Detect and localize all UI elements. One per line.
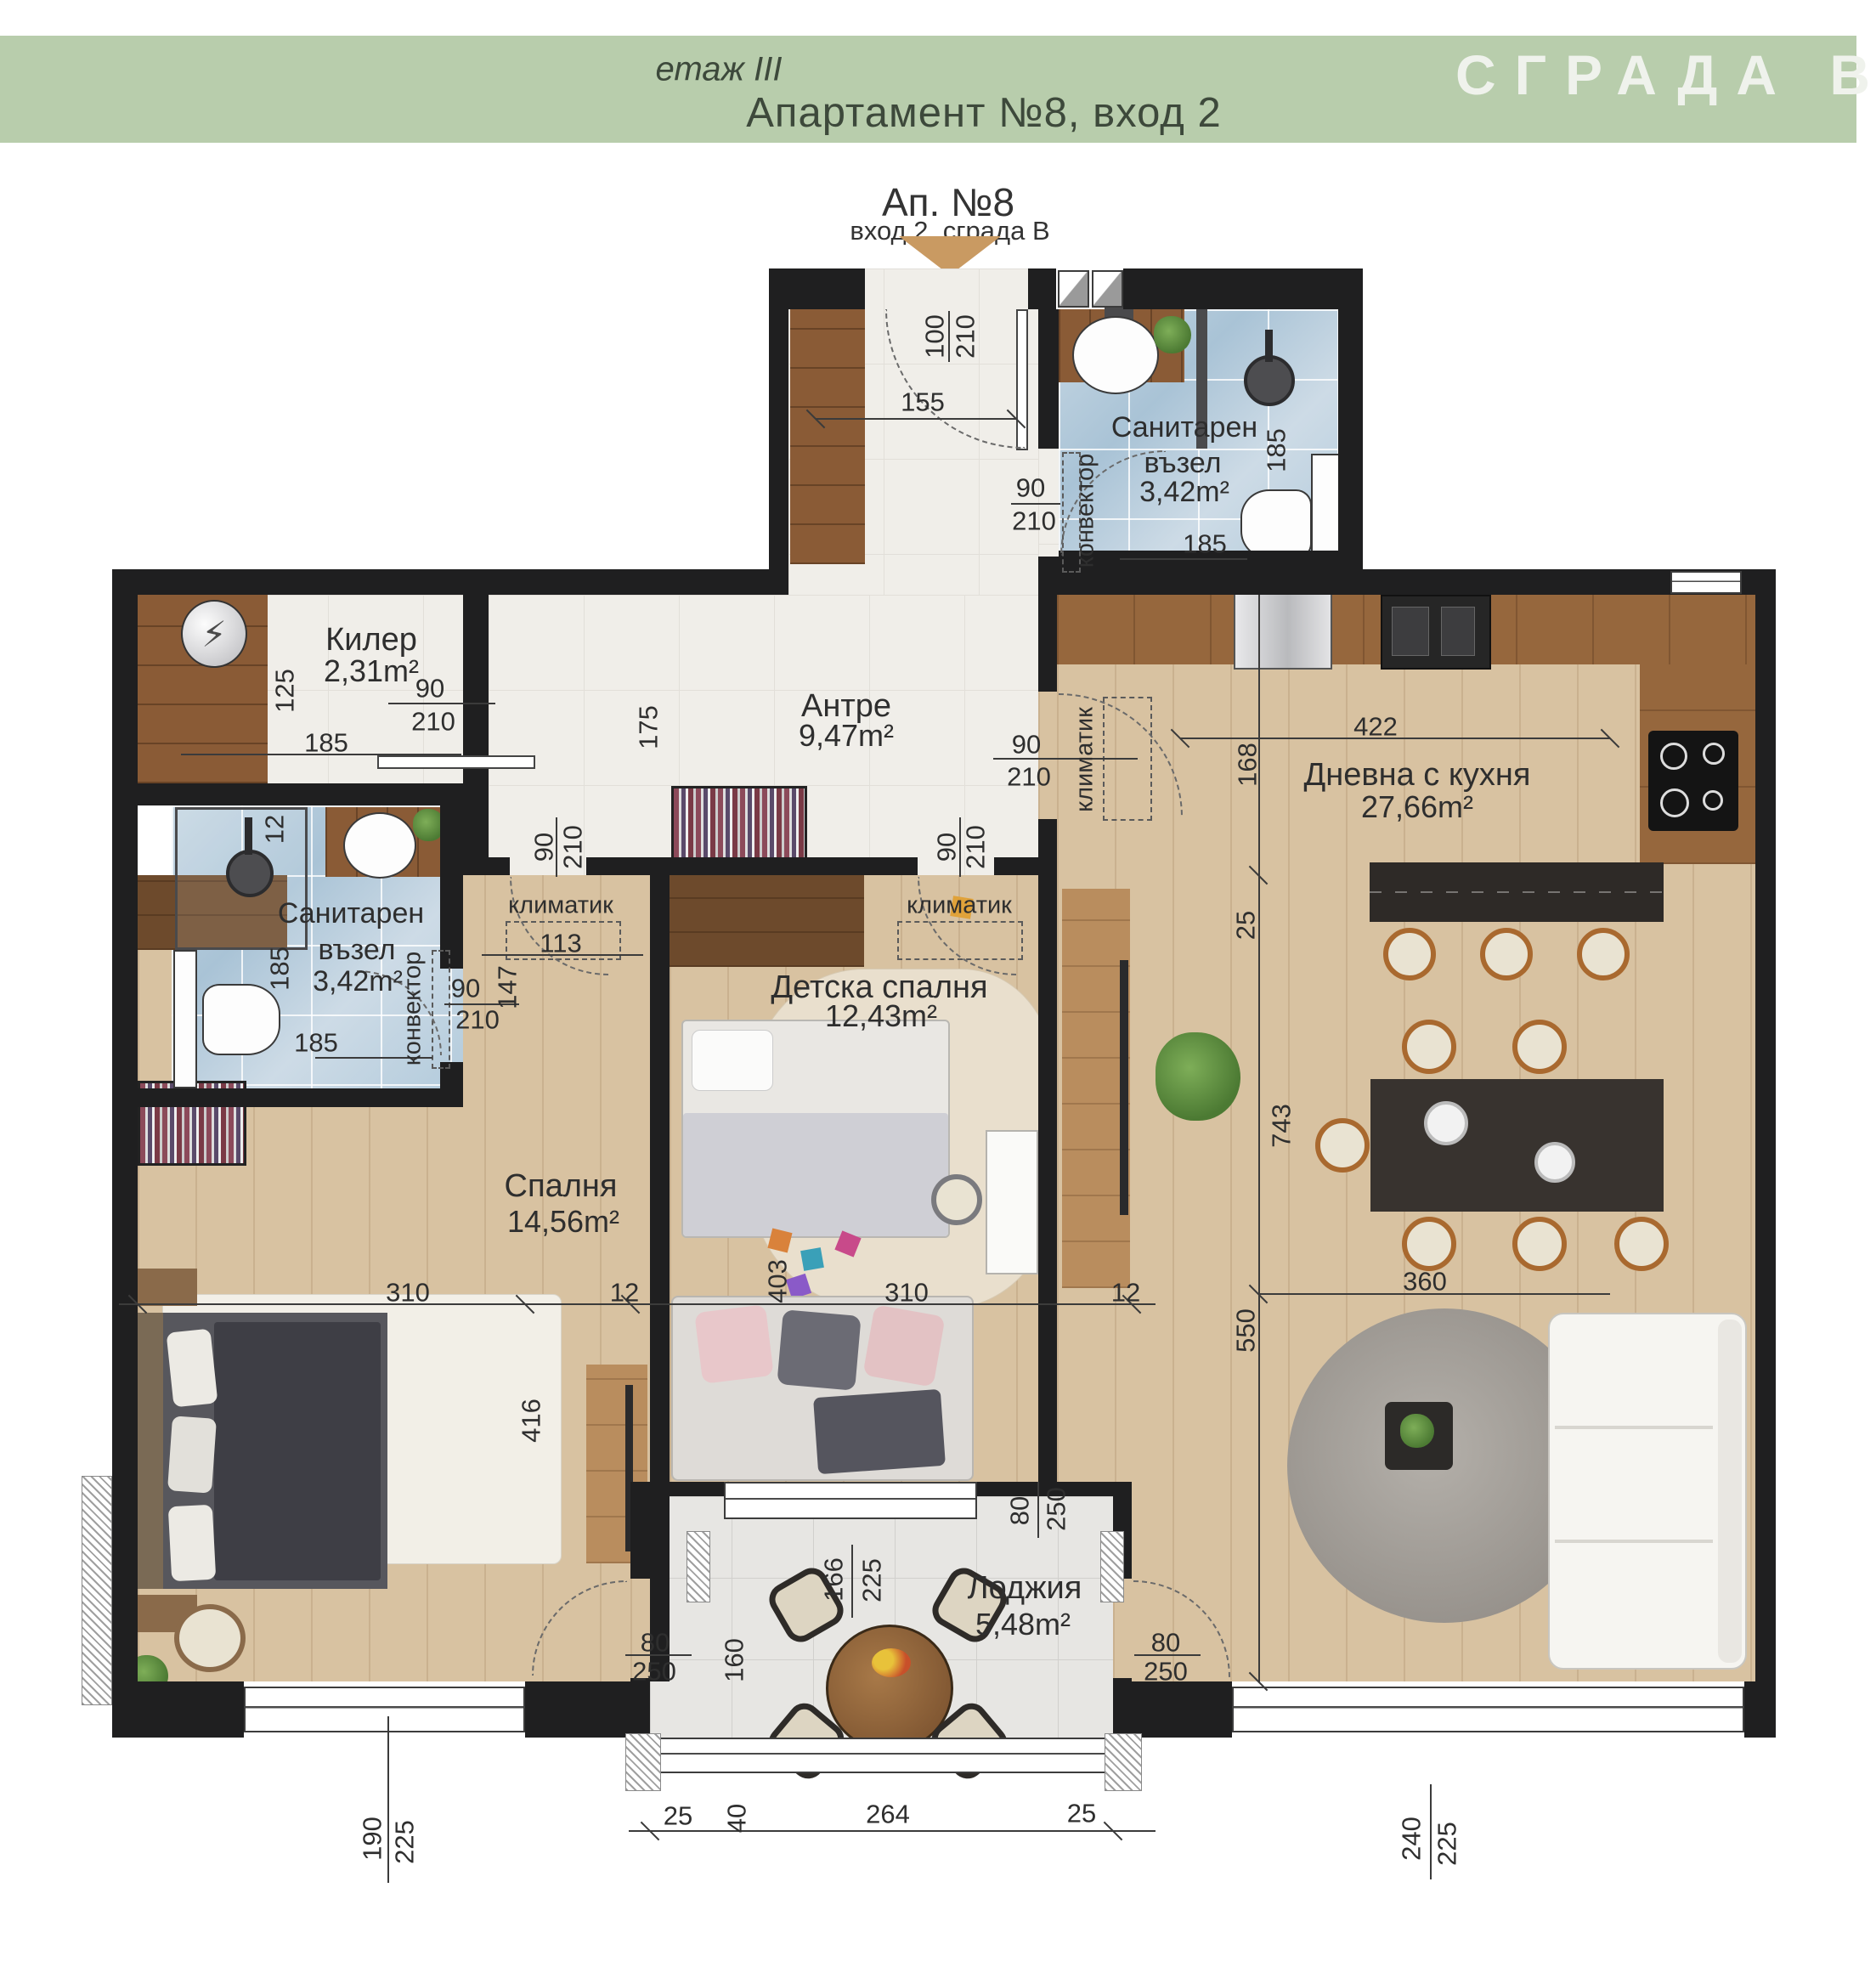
dim: 185 xyxy=(294,1030,338,1056)
dim: 210 xyxy=(411,709,455,735)
dimension-line xyxy=(1011,503,1060,505)
dim: 250 xyxy=(1043,1487,1070,1531)
dim: 80 xyxy=(1151,1630,1180,1656)
room-living-name: Дневна с кухня xyxy=(1304,759,1531,791)
klimatik-label: климатик xyxy=(508,894,613,918)
dim: 155 xyxy=(901,389,945,415)
dim: 80 xyxy=(1007,1496,1033,1525)
dim: 210 xyxy=(1007,764,1051,790)
dim: 160 xyxy=(721,1638,748,1682)
dim: 25 xyxy=(1067,1800,1096,1827)
dim: 743 xyxy=(1269,1104,1295,1148)
dim: 90 xyxy=(1016,475,1045,501)
dim: 12 xyxy=(262,815,288,844)
dim: 240 xyxy=(1399,1817,1425,1861)
dim: 416 xyxy=(518,1399,545,1443)
dim: 210 xyxy=(560,825,586,869)
dim: 185 xyxy=(267,947,293,991)
dim: 210 xyxy=(1012,508,1056,534)
room-kiler-name: Килер xyxy=(325,624,417,656)
dim: 90 xyxy=(934,833,960,862)
room-loggia-area: 5,48m² xyxy=(975,1609,1071,1640)
dim: 90 xyxy=(415,675,444,702)
room-bath1-name2: възел xyxy=(318,935,395,964)
dim: 225 xyxy=(1434,1822,1461,1866)
dim: 147 xyxy=(494,965,521,1009)
room-bath2-area: 3,42m² xyxy=(1139,478,1229,506)
room-living-area: 27,66m² xyxy=(1361,792,1473,822)
dimension-line xyxy=(1037,1482,1039,1538)
room-kiler-area: 2,31m² xyxy=(324,656,419,687)
dim: 250 xyxy=(1144,1659,1188,1685)
dim: 185 xyxy=(1183,531,1227,557)
room-bath1-area: 3,42m² xyxy=(313,967,403,996)
dimension-line xyxy=(851,1545,853,1618)
dim: 210 xyxy=(963,825,989,869)
dim: 264 xyxy=(866,1801,910,1828)
dim: 100 xyxy=(922,314,948,359)
dim: 250 xyxy=(632,1659,676,1685)
dim: 80 xyxy=(641,1630,670,1656)
dim: 25 xyxy=(1233,911,1259,940)
room-loggia-name: Лоджия xyxy=(968,1572,1082,1604)
dim: 210 xyxy=(952,314,979,359)
dim: 310 xyxy=(386,1280,430,1306)
dim: 225 xyxy=(392,1820,418,1864)
dim: 25 xyxy=(664,1803,692,1829)
dim: 90 xyxy=(451,975,480,1002)
dim: 125 xyxy=(272,669,298,713)
dim: 90 xyxy=(1012,732,1041,758)
dim: 225 xyxy=(859,1558,885,1602)
klimatik-label: климатик xyxy=(907,894,1012,918)
dim: 550 xyxy=(1233,1308,1259,1353)
room-bedroom-name: Спалня xyxy=(505,1170,618,1202)
dim: 310 xyxy=(884,1280,929,1306)
room-kids-area: 12,43m² xyxy=(825,1001,937,1031)
dim: 210 xyxy=(455,1007,500,1033)
dim: 185 xyxy=(304,730,348,756)
annotation-overlay: Килер2,31m²Антре9,47m²Санитаренвъзел3,42… xyxy=(0,0,1876,1978)
convector-label: конвектор xyxy=(1074,454,1099,568)
dim: 168 xyxy=(1235,743,1261,787)
dim: 185 xyxy=(1263,428,1290,472)
dim: 12 xyxy=(610,1280,639,1306)
dim: 90 xyxy=(531,833,557,862)
dimension-line xyxy=(629,1830,1156,1832)
room-antre-area: 9,47m² xyxy=(799,721,894,751)
dim: 40 xyxy=(724,1804,750,1833)
room-bedroom-area: 14,56m² xyxy=(507,1207,619,1237)
dim: 422 xyxy=(1353,714,1398,740)
klimatik-label: климатик xyxy=(1073,707,1098,812)
dim: 190 xyxy=(359,1817,386,1861)
dim: 360 xyxy=(1403,1269,1447,1295)
convector-label: конвектор xyxy=(401,952,426,1066)
floor-plan-page: етаж III Апартамент №8, вход 2 СГРАДА В … xyxy=(0,0,1876,1978)
room-bath1-name: Санитарен xyxy=(278,899,424,928)
room-bath2-name2: възел xyxy=(1144,449,1221,478)
dimension-line xyxy=(816,418,1016,420)
dim: 403 xyxy=(765,1259,791,1303)
dim: 12 xyxy=(1111,1280,1140,1306)
dim: 166 xyxy=(821,1557,847,1602)
dim: 113 xyxy=(540,930,581,957)
room-bath2-name: Санитарен xyxy=(1111,413,1257,442)
dim: 175 xyxy=(636,705,662,749)
